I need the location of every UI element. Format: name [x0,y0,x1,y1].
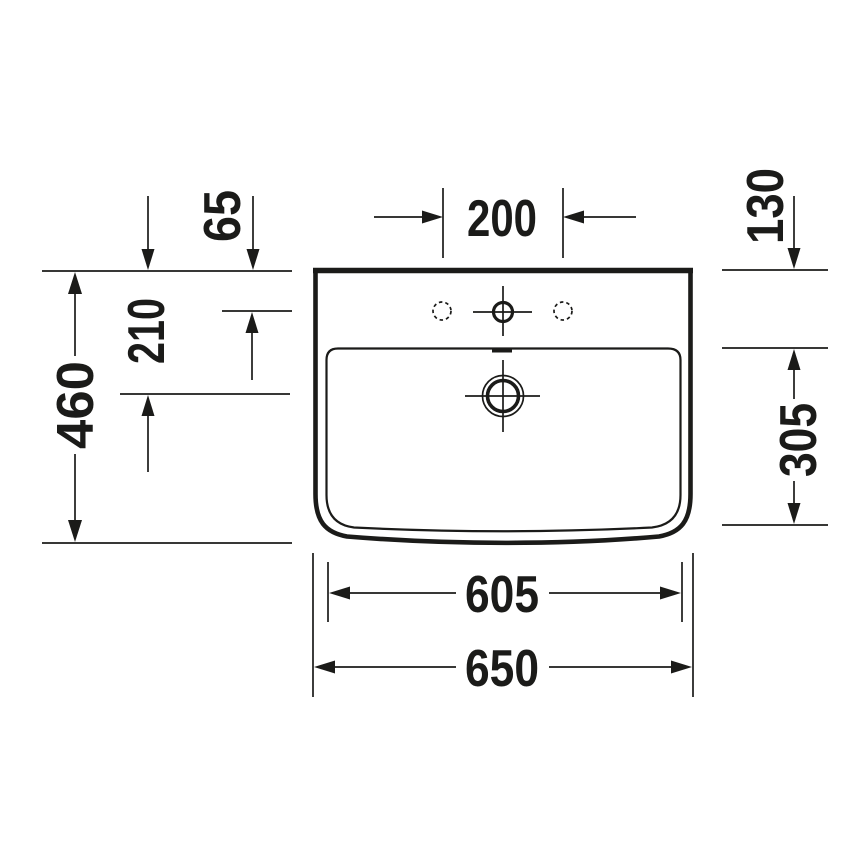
dimension-605: 605 [329,566,681,624]
drain [465,360,540,432]
dim-305-arrow-bottom [788,503,801,524]
dimension-460: 460 [47,272,105,542]
dimension-305: 305 [770,349,828,524]
dimension-650: 650 [314,640,692,698]
dim-65-arrow-top [247,249,260,270]
dim-65-label: 65 [194,190,252,242]
dim-605-arrow-right [660,587,681,600]
dim-130-arrow [788,248,801,269]
dim-210-label: 210 [118,298,176,364]
drawing-svg: 200 65 210 460 130 305 [0,0,868,868]
washbasin-technical-drawing: 200 65 210 460 130 305 [0,0,868,868]
dim-130-label: 130 [737,168,795,244]
dim-460-arrow-top [68,272,82,294]
extension-lines [42,188,828,697]
faucet-hole-right-dashed [554,302,572,320]
dimension-200: 200 [374,190,636,248]
dim-305-arrow-top [788,349,801,370]
dim-200-label: 200 [467,190,537,248]
dim-605-label: 605 [465,566,539,624]
dimension-210: 210 [118,196,176,472]
dim-650-arrow-left [314,661,335,674]
dim-65-arrow-bottom [246,312,259,333]
dim-200-arrow-right [563,211,584,224]
dimension-65: 65 [194,190,260,380]
dim-605-arrow-left [329,587,350,600]
dim-210-arrow-top [142,249,155,270]
dim-200-arrow-left [422,211,443,224]
dim-210-arrow-bottom [142,395,155,416]
dim-460-label: 460 [47,361,105,449]
faucet-holes [433,286,572,336]
dim-305-label: 305 [770,403,828,477]
dimension-130: 130 [737,168,801,269]
dim-650-arrow-right [671,661,692,674]
dim-460-arrow-bottom [68,520,82,542]
dim-650-label: 650 [465,640,539,698]
faucet-hole-left-dashed [433,302,451,320]
